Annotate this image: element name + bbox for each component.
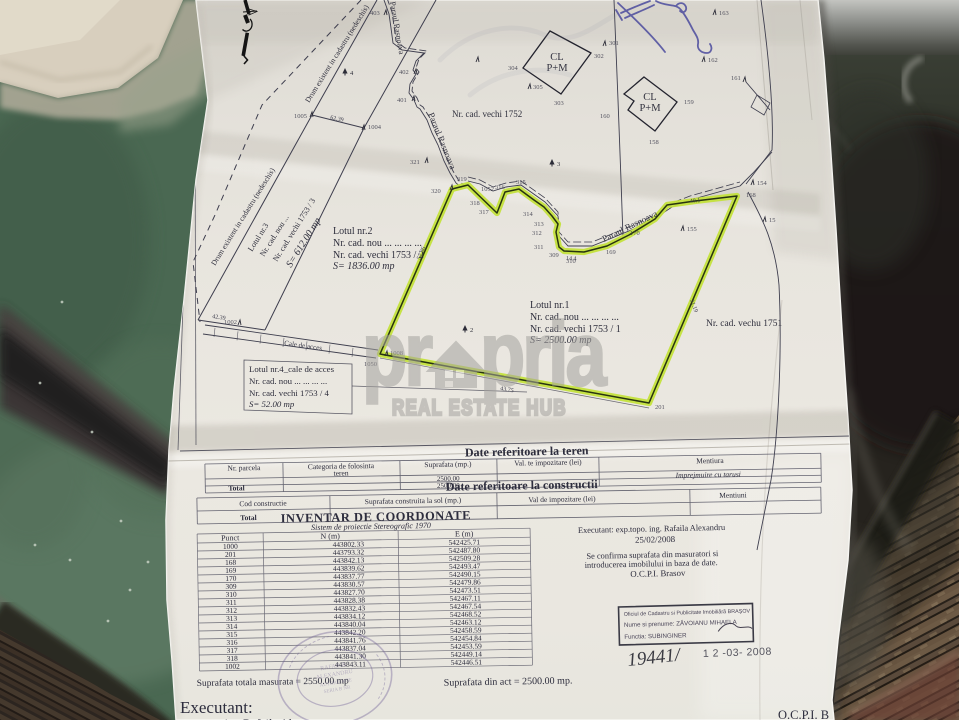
- svg-text:162: 162: [708, 57, 718, 64]
- svg-text:Val. te impozitare (lei): Val. te impozitare (lei): [514, 457, 582, 467]
- svg-text:542446.51: 542446.51: [451, 657, 483, 667]
- svg-text:3: 3: [557, 161, 560, 168]
- svg-text:155: 155: [687, 226, 697, 233]
- svg-text:exp.topo.ing Rafaila Al: exp.topo.ing Rafaila Al: [180, 716, 293, 720]
- svg-text:302: 302: [594, 53, 604, 60]
- svg-text:1002: 1002: [224, 319, 237, 326]
- svg-text:201: 201: [655, 404, 665, 411]
- svg-text:Lotul nr.4_cale de acces: Lotul nr.4_cale de acces: [249, 364, 335, 374]
- svg-text:pria: pria: [480, 304, 608, 405]
- svg-text:15: 15: [769, 217, 776, 224]
- svg-text:Lotul nr.2: Lotul nr.2: [333, 226, 372, 237]
- svg-text:CL: CL: [550, 52, 563, 63]
- svg-text:158: 158: [649, 139, 659, 146]
- svg-text:S= 1836.00 mp: S= 1836.00 mp: [333, 261, 394, 272]
- svg-text:161: 161: [731, 75, 741, 82]
- svg-text:Total: Total: [228, 483, 245, 492]
- svg-text:REAL ESTATE HUB: REAL ESTATE HUB: [392, 396, 567, 421]
- svg-text:1002: 1002: [225, 662, 240, 671]
- svg-text:teren: teren: [333, 468, 348, 477]
- svg-text:P+M: P+M: [639, 103, 661, 114]
- svg-text:314: 314: [523, 211, 534, 218]
- svg-text:Nr. cad. vechi 1753 / 2: Nr. cad. vechi 1753 / 2: [333, 250, 424, 261]
- svg-text:321: 321: [410, 159, 420, 166]
- svg-text:319: 319: [457, 176, 467, 183]
- svg-text:401: 401: [397, 97, 407, 104]
- svg-text:305: 305: [533, 84, 543, 91]
- svg-text:Executant:: Executant:: [180, 698, 253, 717]
- svg-text:pr: pr: [362, 304, 432, 405]
- svg-text:311: 311: [534, 244, 544, 251]
- svg-text:316: 316: [495, 184, 506, 191]
- svg-text:402: 402: [399, 69, 409, 76]
- svg-text:40.1: 40.1: [690, 198, 701, 205]
- svg-text:318: 318: [470, 200, 480, 207]
- svg-text:O.C.P.I. B: O.C.P.I. B: [778, 708, 829, 720]
- svg-text:CL: CL: [643, 92, 656, 103]
- svg-text:2: 2: [470, 327, 473, 334]
- svg-text:313: 313: [534, 221, 544, 228]
- svg-text:1005: 1005: [294, 113, 307, 120]
- svg-text:Nr. parcela: Nr. parcela: [227, 463, 261, 473]
- svg-text:168: 168: [746, 192, 756, 199]
- svg-text:1052: 1052: [481, 186, 494, 193]
- svg-text:1004: 1004: [368, 124, 382, 131]
- svg-text:Val de impozitare (lei): Val de impozitare (lei): [528, 494, 596, 504]
- svg-text:303: 303: [554, 100, 564, 107]
- svg-text:320: 320: [431, 188, 441, 195]
- svg-text:160: 160: [600, 113, 610, 120]
- svg-text:170: 170: [630, 230, 640, 237]
- svg-text:S= 52.00 mp: S= 52.00 mp: [249, 399, 295, 409]
- svg-text:159: 159: [684, 99, 694, 106]
- svg-text:309: 309: [549, 252, 559, 259]
- svg-text:Suprafata construita la sol (m: Suprafata construita la sol (mp.): [365, 495, 462, 506]
- svg-text:Mentiura: Mentiura: [696, 456, 724, 465]
- svg-text:154: 154: [757, 180, 768, 187]
- svg-text:163: 163: [719, 10, 729, 17]
- svg-text:Cod constructie: Cod constructie: [239, 498, 287, 508]
- svg-text:312: 312: [532, 230, 542, 237]
- svg-text:169: 169: [606, 249, 616, 256]
- svg-text:Suprafata (mp.): Suprafata (mp.): [424, 459, 472, 469]
- svg-text:403: 403: [370, 10, 380, 17]
- svg-text:Nr. cad. nou ... ... ... ...: Nr. cad. nou ... ... ... ...: [333, 238, 422, 249]
- svg-text:Total: Total: [240, 513, 257, 522]
- svg-text:301: 301: [609, 40, 619, 47]
- svg-text:1 2 -03- 2008: 1 2 -03- 2008: [703, 646, 772, 660]
- svg-text:Nr. cad. nou ... ... ... ...: Nr. cad. nou ... ... ... ...: [249, 376, 327, 386]
- svg-text:Imprejmuire cu tarusi: Imprejmuire cu tarusi: [674, 470, 740, 480]
- svg-text:O.C.P.I. Brasov: O.C.P.I. Brasov: [630, 568, 686, 579]
- svg-text:Nr. cad. vechi 1752: Nr. cad. vechi 1752: [452, 109, 522, 119]
- svg-text:Suprafata din act = 2500.00 mp: Suprafata din act = 2500.00 mp.: [444, 675, 573, 688]
- svg-text:Nr. cad. vechu 1751: Nr. cad. vechu 1751: [706, 319, 782, 329]
- svg-text:Mentiuni: Mentiuni: [719, 490, 747, 499]
- svg-text:25/02/2008: 25/02/2008: [635, 534, 676, 545]
- svg-text:317: 317: [479, 209, 490, 216]
- svg-text:14.4: 14.4: [566, 256, 577, 262]
- svg-text:315: 315: [516, 179, 526, 186]
- svg-text:Nr. cad. vechi 1753 / 4: Nr. cad. vechi 1753 / 4: [249, 388, 329, 398]
